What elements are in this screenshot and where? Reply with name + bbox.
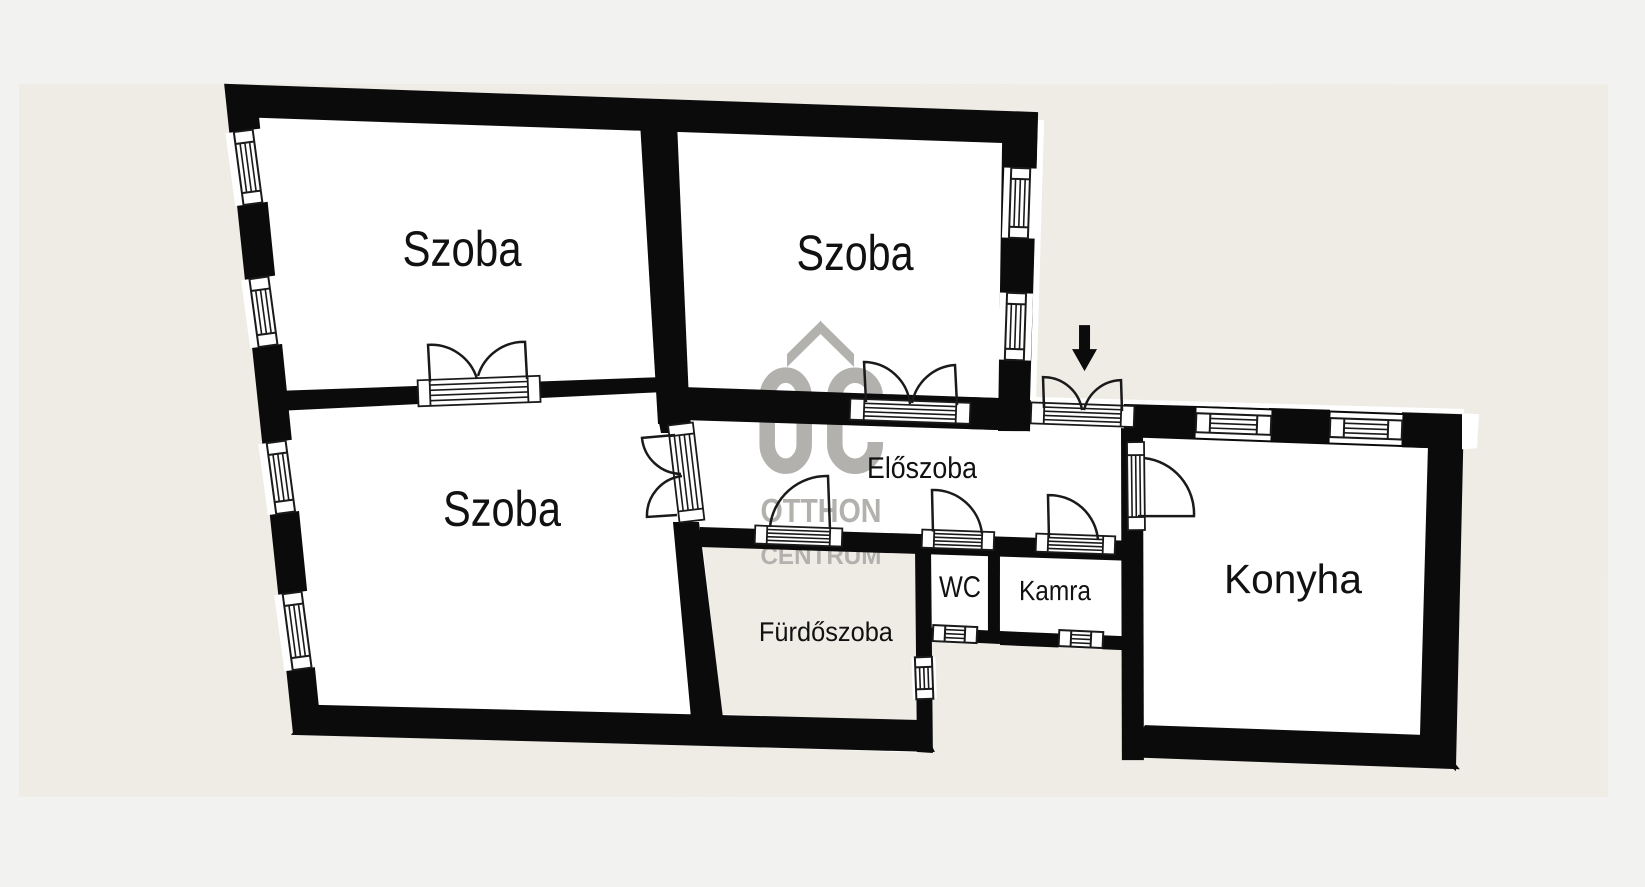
svg-text:Fürdőszoba: Fürdőszoba bbox=[759, 617, 894, 647]
svg-text:Szoba: Szoba bbox=[403, 221, 522, 277]
svg-text:Szoba: Szoba bbox=[797, 225, 914, 281]
svg-text:Szoba: Szoba bbox=[443, 481, 561, 537]
svg-text:WC: WC bbox=[939, 571, 981, 604]
svg-text:Konyha: Konyha bbox=[1224, 556, 1362, 602]
svg-text:OTTHON: OTTHON bbox=[760, 493, 881, 530]
svg-text:Előszoba: Előszoba bbox=[867, 452, 977, 485]
svg-text:Kamra: Kamra bbox=[1019, 575, 1091, 606]
